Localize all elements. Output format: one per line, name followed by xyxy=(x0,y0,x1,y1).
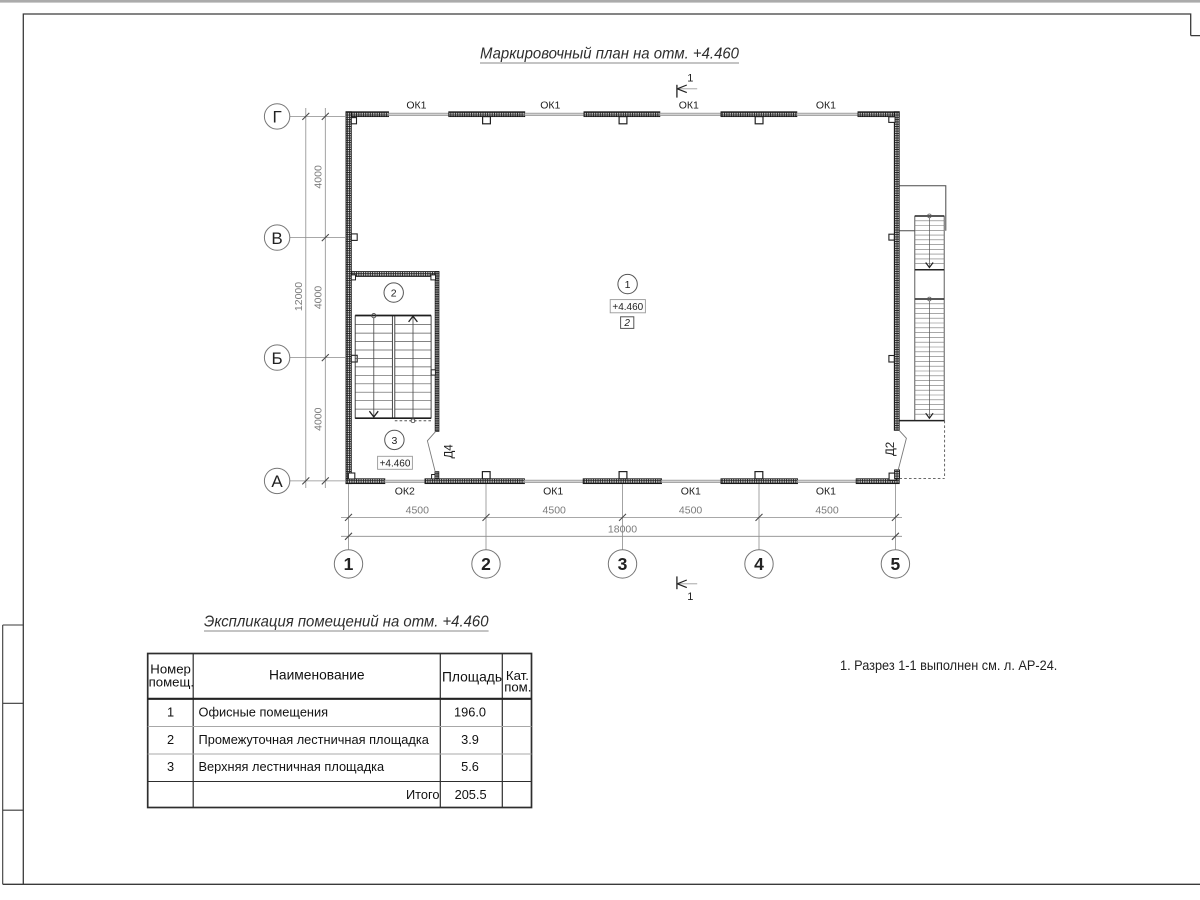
svg-text:ОК1: ОК1 xyxy=(406,99,426,111)
svg-text:1. Разрез 1-1 выполнен см. л.: 1. Разрез 1-1 выполнен см. л. АР-24. xyxy=(840,658,1057,673)
svg-text:205.5: 205.5 xyxy=(455,787,487,802)
svg-text:Наименование: Наименование xyxy=(269,668,365,683)
svg-text:Д2: Д2 xyxy=(885,442,897,456)
svg-text:+4.460: +4.460 xyxy=(612,302,643,313)
svg-text:ОК1: ОК1 xyxy=(681,486,701,498)
svg-text:18000: 18000 xyxy=(608,524,637,536)
svg-text:Промежуточная лестничная площа: Промежуточная лестничная площадка xyxy=(199,732,430,747)
svg-text:Площадь: Площадь xyxy=(442,670,502,685)
svg-text:4500: 4500 xyxy=(815,505,839,517)
svg-text:ОК1: ОК1 xyxy=(543,486,563,498)
svg-text:4500: 4500 xyxy=(679,505,703,517)
svg-text:ОК1: ОК1 xyxy=(816,486,836,498)
svg-text:2: 2 xyxy=(623,318,630,329)
svg-text:Офисные помещения: Офисные помещения xyxy=(199,704,329,719)
svg-text:196.0: 196.0 xyxy=(454,704,486,719)
svg-text:1: 1 xyxy=(167,704,174,719)
svg-text:ОК1: ОК1 xyxy=(816,99,836,111)
svg-text:3: 3 xyxy=(391,435,397,447)
svg-text:3.9: 3.9 xyxy=(461,732,479,747)
svg-text:4: 4 xyxy=(754,554,764,574)
svg-text:4000: 4000 xyxy=(313,165,325,189)
svg-text:Д4: Д4 xyxy=(443,444,455,459)
svg-text:1: 1 xyxy=(687,591,693,603)
svg-text:2: 2 xyxy=(481,554,491,574)
svg-text:Итого: Итого xyxy=(406,787,440,802)
svg-text:2: 2 xyxy=(167,732,174,747)
svg-text:В: В xyxy=(271,229,282,248)
svg-text:4500: 4500 xyxy=(543,505,567,517)
svg-text:помещ.: помещ. xyxy=(149,674,194,689)
svg-text:3: 3 xyxy=(167,759,174,774)
svg-text:4000: 4000 xyxy=(313,286,325,310)
svg-text:12000: 12000 xyxy=(293,282,305,311)
svg-text:4500: 4500 xyxy=(406,505,430,517)
svg-text:пом.: пом. xyxy=(504,680,531,695)
svg-text:1: 1 xyxy=(687,73,693,85)
svg-text:ОК1: ОК1 xyxy=(679,99,699,111)
svg-text:А: А xyxy=(271,472,283,491)
svg-text:+4.460: +4.460 xyxy=(380,458,411,469)
svg-text:5: 5 xyxy=(891,554,901,574)
svg-text:Маркировочный план на отм. +4.: Маркировочный план на отм. +4.460 xyxy=(480,46,739,63)
svg-text:ОК1: ОК1 xyxy=(540,99,560,111)
svg-text:Г: Г xyxy=(272,108,281,127)
svg-text:ОК2: ОК2 xyxy=(395,486,415,498)
svg-text:1: 1 xyxy=(625,279,631,291)
svg-text:2: 2 xyxy=(391,288,397,300)
svg-text:4000: 4000 xyxy=(313,407,325,431)
svg-text:Верхняя лестничная площадка: Верхняя лестничная площадка xyxy=(199,759,386,774)
svg-text:3: 3 xyxy=(618,554,628,574)
svg-text:Б: Б xyxy=(272,349,283,368)
svg-text:5.6: 5.6 xyxy=(461,759,479,774)
svg-text:1: 1 xyxy=(344,554,354,574)
svg-text:Экспликация помещений на отм.: Экспликация помещений на отм. +4.460 xyxy=(204,614,489,631)
